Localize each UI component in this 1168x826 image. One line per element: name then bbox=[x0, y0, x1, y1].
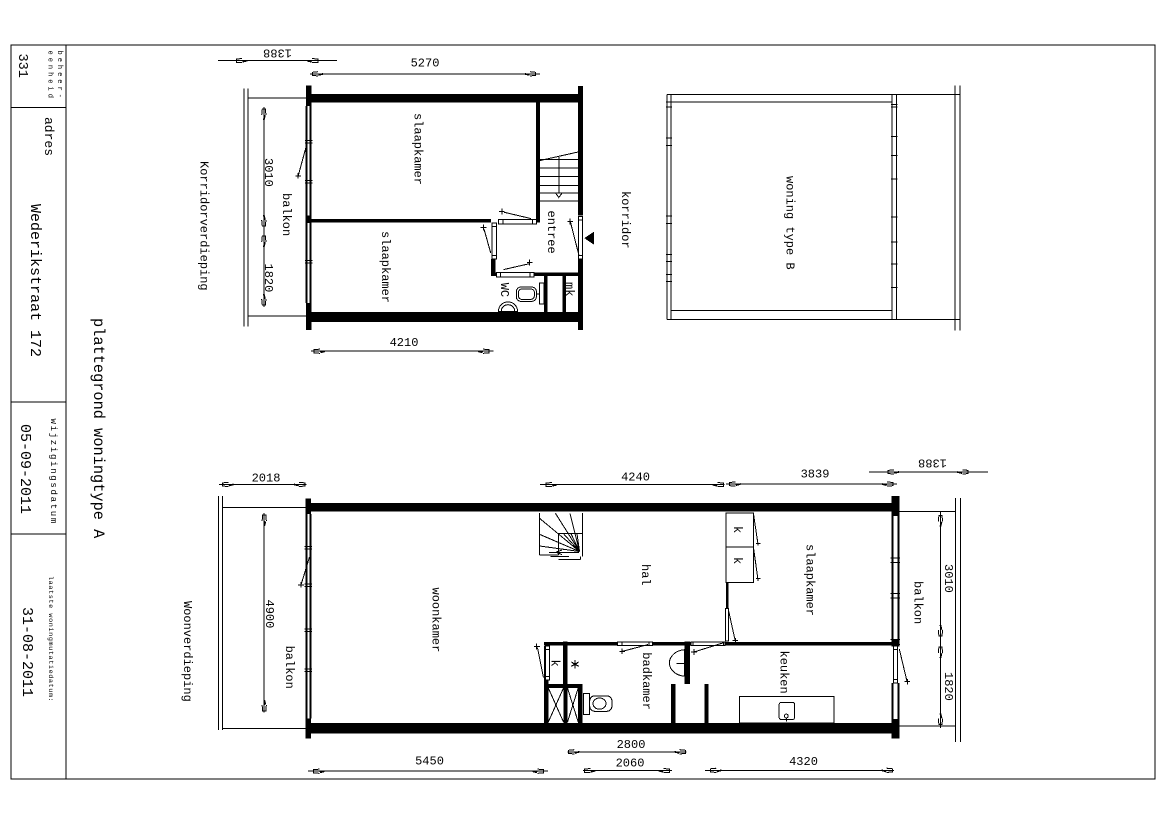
svg-text:1820: 1820 bbox=[941, 672, 955, 701]
svg-text:4900: 4900 bbox=[262, 600, 276, 629]
svg-text:eenheid: eenheid bbox=[46, 51, 54, 101]
svg-text:1388: 1388 bbox=[918, 455, 947, 469]
svg-text:Wederikstraat 172: Wederikstraat 172 bbox=[26, 204, 43, 357]
svg-text:1820: 1820 bbox=[261, 264, 275, 293]
svg-text:keuken: keuken bbox=[777, 651, 791, 694]
svg-text:balkon: balkon bbox=[282, 646, 296, 689]
svg-text:adres: adres bbox=[41, 117, 56, 156]
svg-text:woning type B: woning type B bbox=[783, 176, 797, 270]
svg-text:3010: 3010 bbox=[261, 158, 275, 187]
svg-text:05-09-2011: 05-09-2011 bbox=[16, 424, 33, 514]
svg-text:331: 331 bbox=[14, 54, 29, 78]
svg-text:wijzigingsdatum: wijzigingsdatum bbox=[48, 419, 58, 526]
svg-text:entree: entree bbox=[544, 211, 558, 254]
svg-text:3839: 3839 bbox=[801, 468, 830, 482]
svg-text:slaapkamer: slaapkamer bbox=[411, 113, 425, 185]
svg-text:1388: 1388 bbox=[263, 45, 292, 59]
svg-text:badkamer: badkamer bbox=[639, 652, 653, 710]
svg-text:mk: mk bbox=[562, 282, 576, 296]
svg-text:2018: 2018 bbox=[252, 471, 281, 485]
svg-text:Korridorverdieping: Korridorverdieping bbox=[197, 161, 211, 291]
svg-text:slaapkamer: slaapkamer bbox=[378, 231, 392, 303]
svg-text:3010: 3010 bbox=[941, 564, 955, 593]
svg-text:beheer-: beheer- bbox=[55, 51, 63, 101]
svg-text:2800: 2800 bbox=[617, 738, 646, 752]
svg-text:5270: 5270 bbox=[411, 57, 440, 71]
svg-text:4240: 4240 bbox=[621, 470, 650, 484]
svg-text:balkon: balkon bbox=[279, 193, 293, 236]
svg-text:4320: 4320 bbox=[789, 755, 818, 769]
svg-text:plattegrond woningtype A: plattegrond woningtype A bbox=[89, 318, 107, 539]
svg-text:woonkamer: woonkamer bbox=[429, 588, 443, 653]
svg-text:korridor: korridor bbox=[618, 191, 632, 249]
svg-text:4210: 4210 bbox=[390, 336, 419, 350]
svg-text:slaapkamer: slaapkamer bbox=[803, 544, 817, 616]
svg-text:k: k bbox=[730, 557, 744, 564]
svg-text:hal: hal bbox=[638, 564, 652, 586]
svg-text:laatste woningmutatiedatum:: laatste woningmutatiedatum: bbox=[46, 576, 54, 702]
svg-text:31-08-2011: 31-08-2011 bbox=[18, 607, 35, 697]
svg-text:k: k bbox=[548, 660, 562, 667]
svg-text:2060: 2060 bbox=[616, 756, 645, 770]
svg-text:balkon: balkon bbox=[911, 581, 925, 624]
svg-text:WC: WC bbox=[497, 283, 511, 297]
svg-text:Woonverdieping: Woonverdieping bbox=[180, 601, 194, 702]
svg-text:5450: 5450 bbox=[415, 755, 444, 769]
svg-text:k: k bbox=[730, 526, 744, 533]
